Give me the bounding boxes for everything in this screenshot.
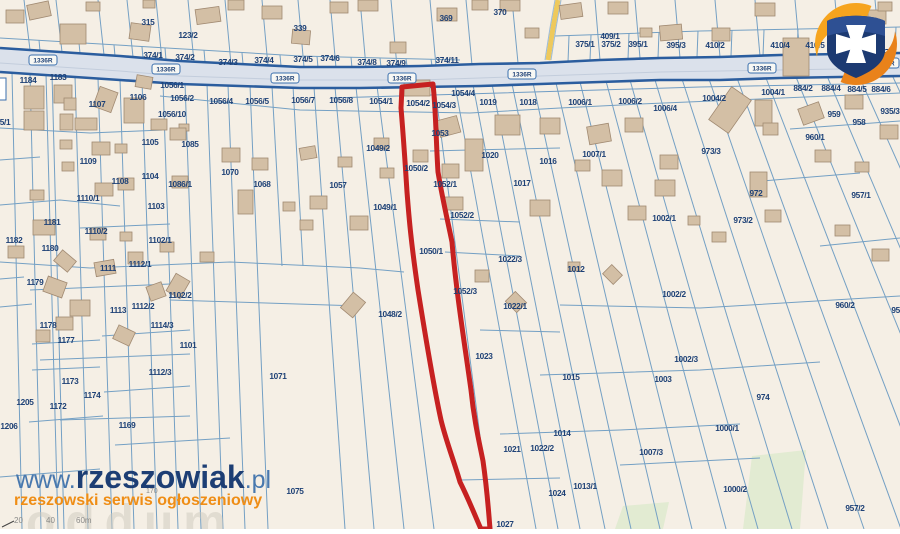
svg-text:1050/1: 1050/1 bbox=[419, 246, 443, 256]
svg-text:123/2: 123/2 bbox=[178, 30, 198, 40]
svg-text:1336R: 1336R bbox=[275, 76, 294, 83]
svg-text:410/2: 410/2 bbox=[705, 40, 725, 50]
svg-text:1070: 1070 bbox=[221, 167, 239, 177]
svg-text:1111: 1111 bbox=[100, 263, 117, 273]
svg-text:1112/1: 1112/1 bbox=[129, 259, 152, 269]
svg-text:1056/7: 1056/7 bbox=[291, 95, 315, 105]
svg-text:374/8: 374/8 bbox=[357, 57, 377, 67]
svg-text:1336R: 1336R bbox=[156, 67, 175, 74]
svg-text:1056/5: 1056/5 bbox=[245, 96, 269, 106]
svg-text:1174: 1174 bbox=[84, 390, 101, 400]
svg-text:1105: 1105 bbox=[142, 137, 159, 147]
svg-text:959: 959 bbox=[828, 109, 842, 119]
svg-text:1015: 1015 bbox=[562, 372, 580, 382]
svg-text:973/3: 973/3 bbox=[701, 146, 721, 156]
svg-text:1075: 1075 bbox=[286, 486, 304, 496]
svg-text:884/5: 884/5 bbox=[847, 84, 867, 94]
svg-text:1052/3: 1052/3 bbox=[453, 286, 477, 296]
svg-text:1052/1: 1052/1 bbox=[433, 179, 457, 189]
svg-text:1179: 1179 bbox=[27, 277, 44, 287]
svg-text:395/1: 395/1 bbox=[628, 39, 648, 49]
svg-text:1022/2: 1022/2 bbox=[530, 443, 554, 453]
svg-text:1019: 1019 bbox=[479, 97, 497, 107]
svg-text:1006/4: 1006/4 bbox=[653, 103, 677, 113]
svg-text:1173: 1173 bbox=[62, 376, 79, 386]
svg-text:374/6: 374/6 bbox=[320, 53, 340, 63]
svg-text:1110/1: 1110/1 bbox=[77, 193, 100, 203]
svg-text:1022/1: 1022/1 bbox=[503, 301, 527, 311]
svg-text:1086/1: 1086/1 bbox=[168, 179, 192, 189]
svg-text:1336R: 1336R bbox=[392, 76, 411, 83]
svg-text:370: 370 bbox=[494, 7, 508, 17]
svg-text:1336R: 1336R bbox=[512, 72, 531, 79]
svg-text:1104: 1104 bbox=[142, 171, 159, 181]
svg-text:1013/1: 1013/1 bbox=[573, 481, 597, 491]
svg-text:1002/2: 1002/2 bbox=[662, 289, 686, 299]
svg-text:884/4: 884/4 bbox=[821, 83, 841, 93]
svg-text:1054/4: 1054/4 bbox=[451, 88, 475, 98]
svg-text:957/1: 957/1 bbox=[851, 190, 871, 200]
svg-text:1007/1: 1007/1 bbox=[582, 149, 606, 159]
svg-text:1336R: 1336R bbox=[33, 58, 52, 65]
svg-text:374/2: 374/2 bbox=[175, 52, 195, 62]
svg-text:410/4: 410/4 bbox=[770, 40, 790, 50]
svg-text:1012: 1012 bbox=[567, 264, 585, 274]
svg-text:1056/1: 1056/1 bbox=[160, 80, 184, 90]
svg-text:5/1: 5/1 bbox=[0, 117, 11, 127]
svg-text:374/11: 374/11 bbox=[435, 55, 459, 65]
svg-text:1054/1: 1054/1 bbox=[369, 96, 393, 106]
svg-text:1180: 1180 bbox=[42, 243, 59, 253]
svg-text:1172: 1172 bbox=[50, 401, 67, 411]
svg-text:1053: 1053 bbox=[431, 128, 449, 138]
svg-text:1056/2: 1056/2 bbox=[170, 93, 194, 103]
svg-text:375/1: 375/1 bbox=[575, 39, 595, 49]
svg-text:1004/1: 1004/1 bbox=[761, 87, 785, 97]
svg-text:1003: 1003 bbox=[654, 374, 672, 384]
svg-text:884/2: 884/2 bbox=[793, 83, 813, 93]
svg-text:1109: 1109 bbox=[80, 156, 97, 166]
svg-text:315: 315 bbox=[142, 17, 156, 27]
svg-text:1002/3: 1002/3 bbox=[674, 354, 698, 364]
svg-text:1085: 1085 bbox=[181, 139, 199, 149]
svg-text:1000/1: 1000/1 bbox=[715, 423, 739, 433]
svg-text:1020: 1020 bbox=[481, 150, 499, 160]
svg-text:1002/1: 1002/1 bbox=[652, 213, 676, 223]
svg-text:1048/2: 1048/2 bbox=[378, 309, 402, 319]
svg-text:1102/2: 1102/2 bbox=[168, 290, 192, 300]
svg-text:960/2: 960/2 bbox=[835, 300, 855, 310]
svg-text:1007/3: 1007/3 bbox=[639, 447, 663, 457]
svg-text:1206: 1206 bbox=[0, 421, 18, 431]
svg-text:1004/2: 1004/2 bbox=[702, 93, 726, 103]
svg-text:1021: 1021 bbox=[503, 444, 521, 454]
svg-text:1049/1: 1049/1 bbox=[373, 202, 397, 212]
svg-text:374/3: 374/3 bbox=[218, 57, 238, 67]
svg-text:1056/4: 1056/4 bbox=[209, 96, 233, 106]
svg-text:1205: 1205 bbox=[16, 397, 34, 407]
svg-text:1022/3: 1022/3 bbox=[498, 254, 522, 264]
svg-text:1106: 1106 bbox=[130, 92, 147, 102]
svg-text:1184: 1184 bbox=[20, 75, 37, 85]
svg-text:1024: 1024 bbox=[548, 488, 566, 498]
svg-text:395/3: 395/3 bbox=[666, 40, 686, 50]
svg-text:1103: 1103 bbox=[148, 201, 165, 211]
svg-text:1027: 1027 bbox=[496, 519, 514, 529]
svg-text:374/9: 374/9 bbox=[386, 58, 406, 68]
svg-text:960/1: 960/1 bbox=[805, 132, 825, 142]
svg-text:1068: 1068 bbox=[253, 179, 271, 189]
svg-text:374/5: 374/5 bbox=[293, 54, 313, 64]
svg-text:369: 369 bbox=[440, 13, 454, 23]
svg-text:974: 974 bbox=[757, 392, 771, 402]
svg-text:1018: 1018 bbox=[519, 97, 537, 107]
svg-text:1177: 1177 bbox=[58, 335, 75, 345]
svg-text:1049/2: 1049/2 bbox=[366, 143, 390, 153]
svg-text:1052/2: 1052/2 bbox=[450, 210, 474, 220]
svg-text:374/1: 374/1 bbox=[143, 50, 163, 60]
svg-text:374/4: 374/4 bbox=[254, 55, 274, 65]
svg-text:40: 40 bbox=[46, 516, 55, 525]
svg-text:1017: 1017 bbox=[513, 178, 531, 188]
svg-text:1014: 1014 bbox=[553, 428, 571, 438]
svg-text:1000/2: 1000/2 bbox=[723, 484, 747, 494]
svg-text:1181: 1181 bbox=[44, 217, 61, 227]
svg-text:1101: 1101 bbox=[180, 340, 197, 350]
svg-text:1336R: 1336R bbox=[752, 66, 771, 73]
svg-text:1056/10: 1056/10 bbox=[158, 109, 187, 119]
svg-text:1182: 1182 bbox=[6, 235, 23, 245]
svg-text:1056/8: 1056/8 bbox=[329, 95, 353, 105]
svg-text:rzeszowski serwis ogłoszeniowy: rzeszowski serwis ogłoszeniowy bbox=[14, 492, 262, 509]
svg-text:60m: 60m bbox=[76, 516, 92, 525]
svg-text:1023: 1023 bbox=[475, 351, 493, 361]
svg-text:1178: 1178 bbox=[40, 320, 57, 330]
svg-text:1112/2: 1112/2 bbox=[132, 301, 155, 311]
svg-text:1054/3: 1054/3 bbox=[432, 100, 456, 110]
svg-text:1113: 1113 bbox=[110, 305, 127, 315]
svg-text:1108: 1108 bbox=[112, 176, 129, 186]
svg-text:972: 972 bbox=[750, 188, 764, 198]
svg-text:1057: 1057 bbox=[329, 180, 347, 190]
svg-text:1050/2: 1050/2 bbox=[404, 163, 428, 173]
svg-text:409/1: 409/1 bbox=[600, 31, 620, 41]
svg-text:1006/2: 1006/2 bbox=[618, 96, 642, 106]
svg-text:1114/3: 1114/3 bbox=[151, 320, 174, 330]
svg-text:1169: 1169 bbox=[119, 420, 136, 430]
svg-text:1183: 1183 bbox=[50, 72, 67, 82]
svg-text:1006/1: 1006/1 bbox=[568, 97, 592, 107]
svg-text:339: 339 bbox=[294, 23, 308, 33]
svg-text:973/2: 973/2 bbox=[733, 215, 753, 225]
svg-text:1054/2: 1054/2 bbox=[406, 98, 430, 108]
svg-text:1102/1: 1102/1 bbox=[148, 235, 172, 245]
svg-text:958: 958 bbox=[853, 117, 867, 127]
svg-text:957/2: 957/2 bbox=[891, 305, 900, 315]
svg-text:1071: 1071 bbox=[269, 371, 287, 381]
svg-text:20: 20 bbox=[14, 516, 23, 525]
svg-text:935/3: 935/3 bbox=[880, 106, 900, 116]
svg-text:1112/3: 1112/3 bbox=[149, 367, 172, 377]
svg-text:1107: 1107 bbox=[89, 99, 106, 109]
svg-text:1016: 1016 bbox=[539, 156, 557, 166]
svg-text:884/6: 884/6 bbox=[871, 84, 891, 94]
svg-text:1110/2: 1110/2 bbox=[85, 226, 108, 236]
svg-text:957/2: 957/2 bbox=[845, 503, 865, 513]
